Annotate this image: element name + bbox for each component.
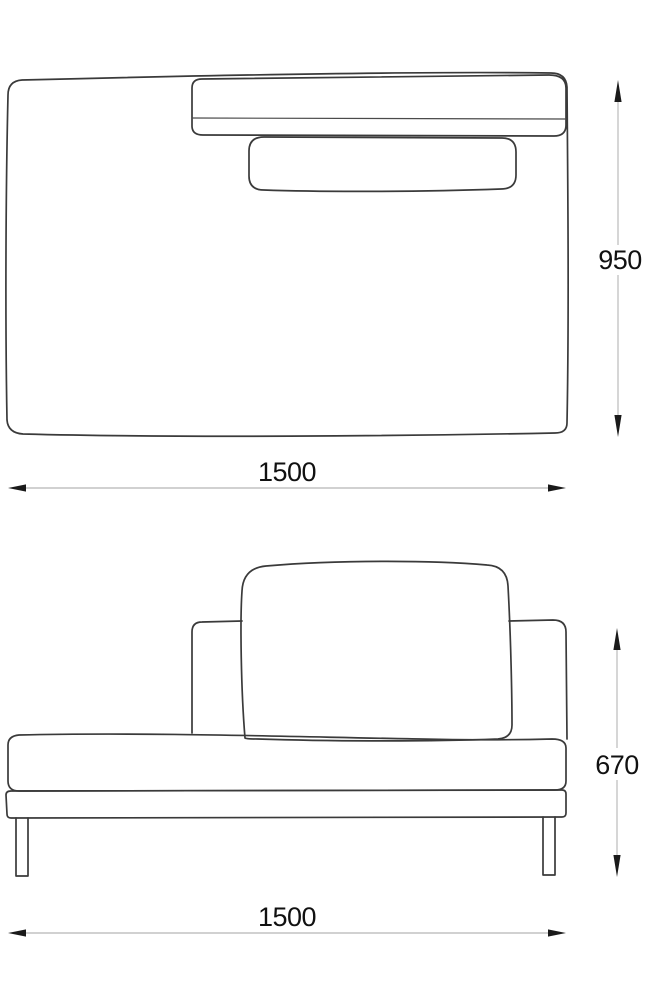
top-view: 950 1500	[6, 73, 642, 492]
drawing-page: 950 1500	[0, 0, 658, 1000]
front-view-left-leg	[16, 818, 28, 876]
top-view-width-dimension: 1500	[8, 457, 566, 492]
front-width-arrow-left-icon	[8, 929, 26, 936]
depth-dimension-arrow-up-icon	[614, 80, 621, 102]
top-width-arrow-right-icon	[548, 484, 566, 491]
front-view-height-dimension: 670	[595, 628, 639, 877]
front-view-backrest-frame-left	[192, 621, 242, 733]
front-view-right-leg	[543, 817, 555, 875]
top-view-cushion-outline	[249, 137, 516, 191]
technical-drawing-canvas: 950 1500	[0, 0, 658, 1000]
front-view-base-rail-outline	[6, 790, 566, 818]
front-view-backrest-frame-right	[509, 620, 567, 739]
top-width-arrow-left-icon	[8, 484, 26, 491]
front-view-seat-cushion-outline	[8, 734, 566, 791]
height-dimension-arrow-up-icon	[613, 628, 620, 650]
front-view: 670 1500	[6, 561, 639, 936]
depth-dimension-label: 950	[598, 245, 642, 275]
top-view-backrest-outline	[192, 75, 566, 136]
top-width-dimension-label: 1500	[258, 457, 316, 487]
top-view-depth-dimension: 950	[598, 80, 642, 437]
top-view-backrest-seam-line	[192, 118, 566, 119]
depth-dimension-arrow-down-icon	[614, 415, 621, 437]
height-dimension-arrow-down-icon	[613, 855, 620, 877]
top-view-body-outline	[6, 73, 568, 437]
front-view-width-dimension: 1500	[8, 902, 566, 937]
front-view-back-cushion-outline	[241, 561, 512, 741]
front-width-dimension-label: 1500	[258, 902, 316, 932]
height-dimension-label: 670	[595, 750, 639, 780]
front-width-arrow-right-icon	[548, 929, 566, 936]
